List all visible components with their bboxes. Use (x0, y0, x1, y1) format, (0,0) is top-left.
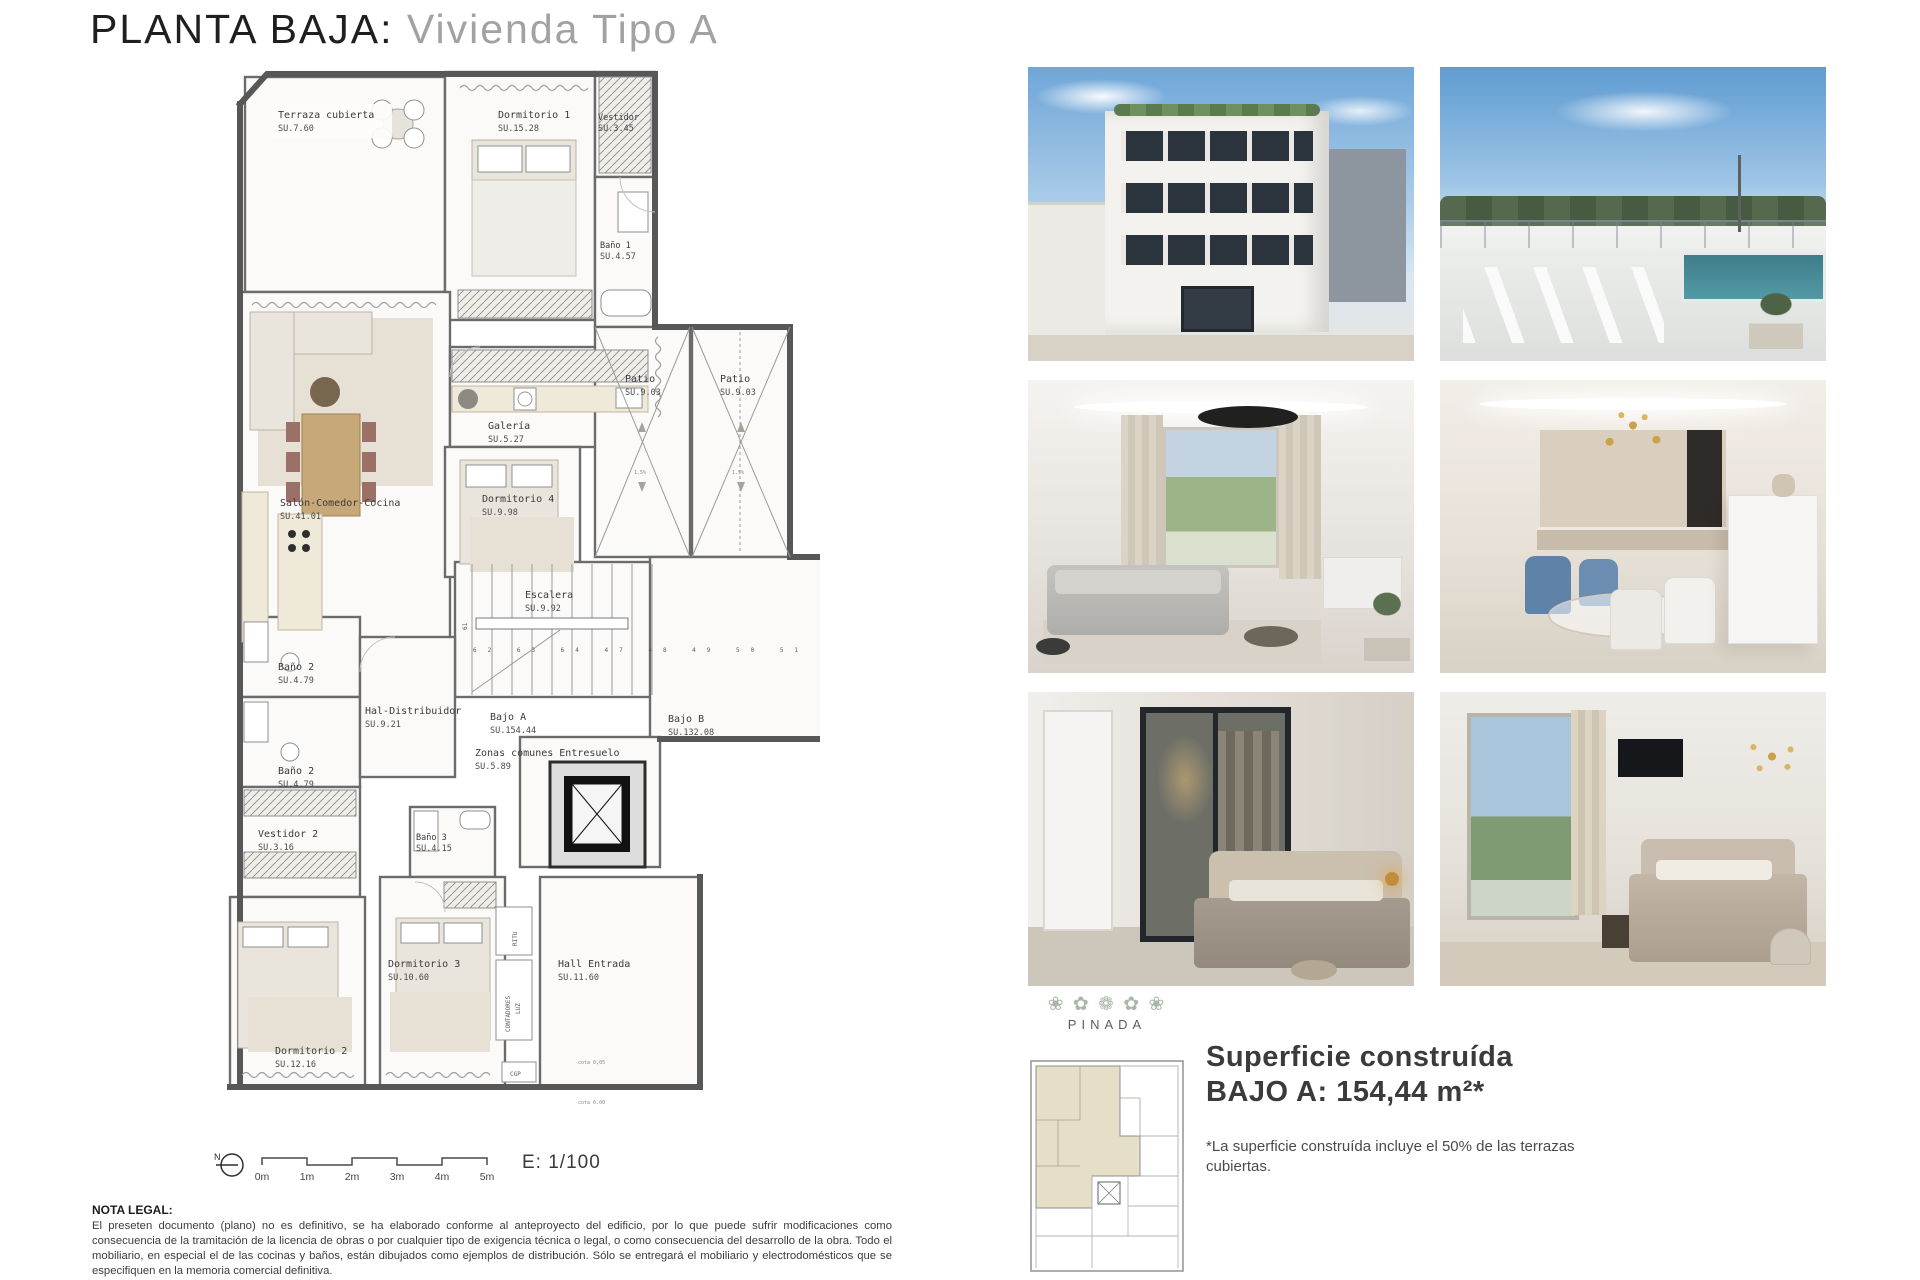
cgp-label: CGP (510, 1071, 521, 1078)
page: PLANTA BAJA: Vivienda Tipo A (0, 0, 1920, 1280)
room-area: SU.9.03 (720, 388, 756, 398)
pillows (1656, 860, 1772, 881)
shower-post (1738, 155, 1741, 231)
photo-dining-kitchen (1440, 380, 1826, 673)
window (1467, 713, 1579, 921)
chandelier (1594, 409, 1671, 450)
photo-bedroom-window (1440, 692, 1826, 986)
room-label: Zonas comunes Entresuelo (475, 748, 620, 759)
room-area: SU.15.28 (498, 124, 539, 134)
white-chair (1664, 577, 1716, 643)
legal-body: El preseten documento (plano) no es defi… (92, 1219, 892, 1279)
room-area: SU.5.89 (475, 762, 511, 772)
page-title: PLANTA BAJA: Vivienda Tipo A (90, 6, 719, 53)
room-label: Galería (488, 420, 530, 432)
sofa-cushions (1055, 570, 1221, 593)
ritu-label: RITU (512, 931, 519, 946)
scale-tick: 5m (480, 1171, 495, 1183)
luz-label: LUZ (515, 1003, 522, 1014)
room-area: SU.9.92 (525, 604, 561, 614)
room-area: SU.41.01 (280, 512, 321, 522)
scale-ruler (262, 1158, 487, 1165)
legal-heading: NOTA LEGAL: (92, 1203, 892, 1217)
room-label: Baño 1 (600, 241, 631, 251)
room-area: SU.4.79 (278, 780, 314, 790)
room-label: Baño 3 (416, 833, 447, 843)
title-main: PLANTA BAJA: (90, 6, 394, 52)
sputnik-lamp (1741, 733, 1803, 780)
room-area: SU.3.45 (598, 124, 634, 134)
curtain (1121, 415, 1163, 579)
room-label: Vestidor 2 (258, 829, 318, 840)
bed-duvet (1194, 898, 1410, 969)
entrance-glass (1181, 286, 1254, 332)
door-frame (1043, 710, 1113, 932)
scale-tick: 1m (300, 1171, 315, 1183)
white-cabinet (1728, 495, 1819, 644)
curtain (1279, 415, 1321, 579)
cota-label: cota 0,05 (578, 1060, 605, 1066)
potted-plant (1749, 285, 1803, 350)
stool (1291, 960, 1337, 981)
street (1028, 335, 1414, 361)
plant (1364, 585, 1410, 661)
neighbor-building (1028, 202, 1105, 334)
contadores-label: CONTADORES (505, 995, 512, 1032)
garland-icon: ❀ ✿ ❁ ✿ ❀ (1028, 995, 1186, 1014)
slope-label: 1.5% (732, 470, 744, 476)
surface-footnote: *La superficie construída incluye el 50%… (1206, 1137, 1586, 1178)
scale-tick: 4m (435, 1171, 450, 1183)
main-building (1105, 111, 1329, 332)
room-label: Dormitorio 1 (498, 110, 570, 121)
facade-mullions (1121, 131, 1314, 283)
room-label: Baño 2 (278, 766, 314, 777)
room-label: Bajo B (668, 714, 704, 725)
surface-title: Superficie construída (1206, 1040, 1626, 1075)
ceiling-cove (1479, 398, 1788, 410)
closet-contents (1217, 731, 1280, 865)
room-area: SU.4.57 (600, 252, 636, 262)
room-label: Hall Entrada (558, 959, 630, 970)
room-area: SU.4.79 (278, 676, 314, 686)
floor-plan-svg: Terraza cubierta SU.7.60 Dormitorio 1 SU… (220, 62, 820, 1112)
white-chair (1610, 589, 1662, 650)
room-label: Patio (720, 374, 750, 385)
room-label: Dormitorio 2 (275, 1046, 347, 1057)
surface-block: Superficie construída BAJO A: 154,44 m²*… (1206, 1040, 1626, 1177)
room-area: SU.5.27 (488, 435, 524, 445)
neighbor-building (1329, 149, 1406, 302)
room-label: Patio (625, 374, 655, 385)
room-area: SU.11.60 (558, 973, 599, 983)
room-area: SU.9.03 (625, 388, 661, 398)
room-label: Baño 2 (278, 662, 314, 673)
glass-railing (1440, 220, 1826, 248)
room-label: Hal-Distribuidor (365, 706, 461, 717)
room-area: SU.3.16 (258, 843, 294, 853)
title-sub: Vivienda Tipo A (407, 6, 719, 52)
room-area: SU.9.98 (482, 508, 518, 518)
kitchen-counter (1537, 527, 1730, 551)
floor-plan: Terraza cubierta SU.7.60 Dormitorio 1 SU… (220, 62, 820, 1112)
photo-living-room (1028, 380, 1414, 673)
room-area: SU.9.21 (365, 720, 401, 730)
room-label: Escalera (525, 590, 573, 601)
side-table (1770, 928, 1811, 965)
room-label: Bajo A (490, 712, 526, 723)
surface-value: BAJO A: 154,44 m²* (1206, 1075, 1626, 1110)
legal-note: NOTA LEGAL: El preseten documento (plano… (92, 1203, 892, 1280)
sun-loungers (1463, 267, 1664, 343)
north-label: N (214, 1152, 221, 1162)
oven-column (1687, 430, 1722, 530)
brand-name: PINADA (1028, 1017, 1186, 1032)
scale-tick: 3m (390, 1171, 405, 1183)
brand-block: ❀ ✿ ❁ ✿ ❀ PINADA (1028, 995, 1186, 1032)
room-area: SU.4.15 (416, 844, 452, 854)
window-view (1163, 427, 1279, 568)
cloud (1556, 91, 1734, 132)
room-label: Dormitorio 3 (388, 959, 460, 970)
photo-bedroom-dressing (1028, 692, 1414, 986)
room-label: Dormitorio 4 (482, 494, 554, 505)
room-area: SU.7.60 (278, 124, 314, 134)
vase (1772, 474, 1795, 497)
stair-numbers: 62 63 64 47 48 49 50 51 52 (473, 647, 820, 654)
scale-tick: 0m (255, 1171, 270, 1183)
scale-bar: N 0m 1m 2m 3m 4m 5m (212, 1148, 522, 1192)
render-gallery (1028, 67, 1826, 986)
warm-light (1157, 735, 1213, 824)
room-label: Vestidor (598, 113, 639, 123)
gold-lamp (1385, 872, 1399, 886)
room-label: Terraza cubierta (278, 110, 374, 121)
room-area: SU.12.16 (275, 1060, 316, 1070)
coffee-table (1244, 626, 1298, 647)
roof-greenery (1114, 104, 1320, 116)
stair-number: 61 (462, 622, 469, 630)
slope-label: 1.5% (634, 470, 646, 476)
curtain (1571, 710, 1606, 916)
key-plan (1028, 1058, 1186, 1274)
room-area: SU.132.08 (668, 728, 714, 738)
scale-text: E: 1/100 (522, 1152, 601, 1174)
pillows (1229, 880, 1383, 901)
room-label: Salón-Comedor-Cocina (280, 497, 400, 509)
tv-screen (1618, 739, 1684, 777)
cota-label: cota 0.00 (578, 1100, 605, 1106)
scale-tick: 2m (345, 1171, 360, 1183)
photo-building-exterior (1028, 67, 1414, 361)
room-area: SU.10.60 (388, 973, 429, 983)
room-area: SU.154.44 (490, 726, 536, 736)
photo-roof-terrace (1440, 67, 1826, 361)
